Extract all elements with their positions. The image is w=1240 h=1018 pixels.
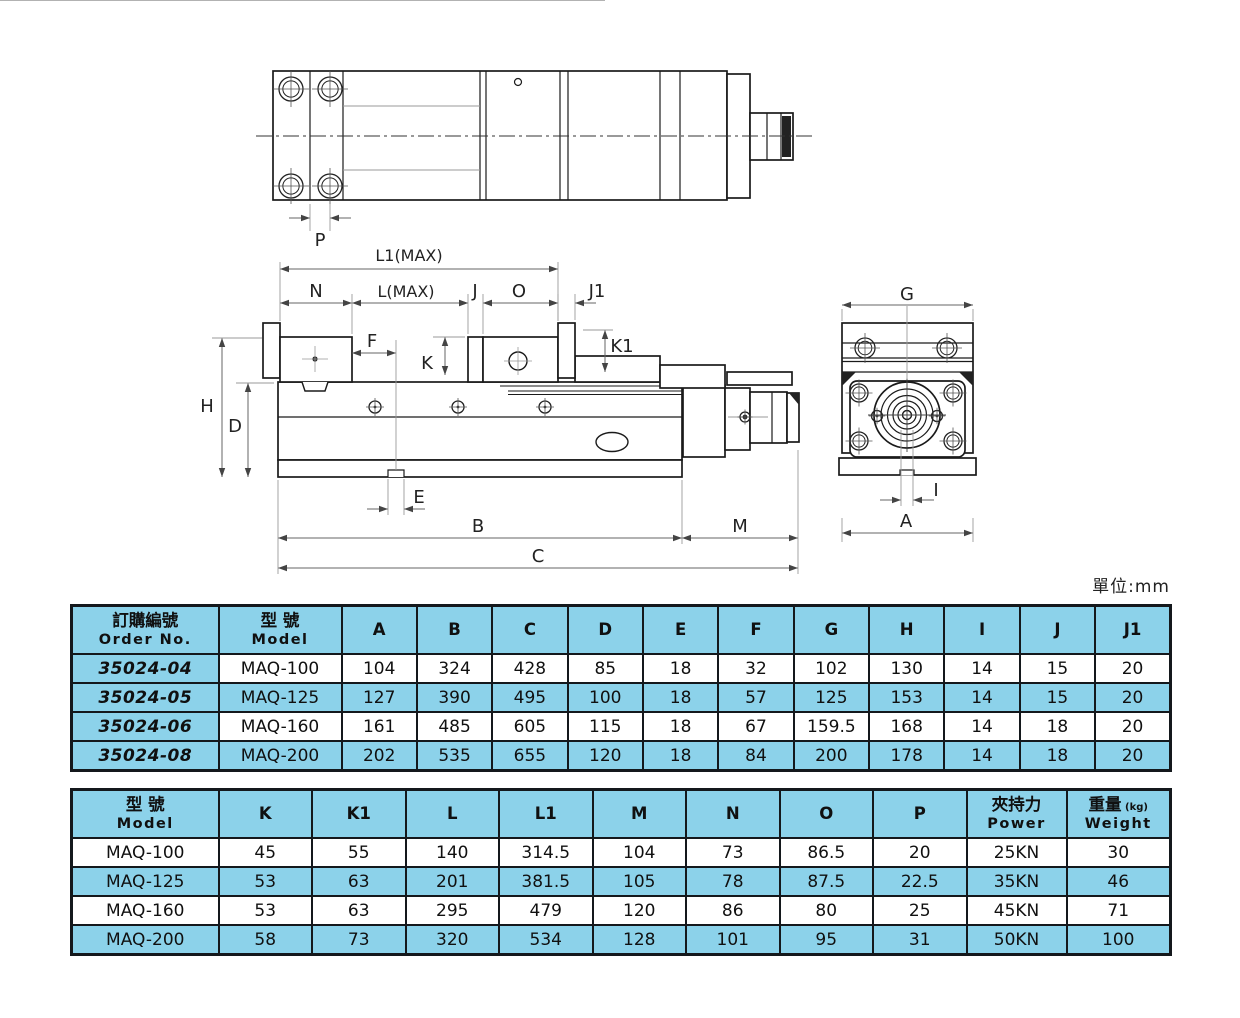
value-cell: 18: [1020, 712, 1095, 741]
value-cell: 53: [219, 896, 313, 925]
header-row: 型 號ModelKK1LL1MNOP夾持力Power重量 (kg)Weight: [72, 790, 1171, 839]
column-header: H: [869, 606, 944, 655]
value-cell: 46: [1067, 867, 1171, 896]
value-cell: 14: [944, 712, 1019, 741]
value-cell: 14: [944, 654, 1019, 683]
value-cell: 50KN: [967, 925, 1067, 955]
value-cell: 84: [718, 741, 793, 771]
dim-label-a: A: [900, 511, 913, 532]
dim-label-c: C: [532, 546, 545, 567]
value-cell: 178: [869, 741, 944, 771]
value-cell: 86.5: [780, 838, 874, 867]
dim-label-d: D: [228, 416, 242, 437]
value-cell: 45: [219, 838, 313, 867]
dim-label-j: J: [471, 281, 477, 302]
order-no-cell: 35024-05: [72, 683, 219, 712]
column-header: A: [342, 606, 417, 655]
value-cell: 78: [686, 867, 780, 896]
value-cell: 14: [944, 741, 1019, 771]
value-cell: 485: [417, 712, 492, 741]
value-cell: 324: [417, 654, 492, 683]
value-cell: 45KN: [967, 896, 1067, 925]
value-cell: 159.5: [794, 712, 869, 741]
dim-label-b: B: [472, 516, 484, 537]
value-cell: 22.5: [873, 867, 967, 896]
dim-label-k1: K1: [610, 336, 633, 357]
value-cell: 86: [686, 896, 780, 925]
value-cell: 18: [1020, 741, 1095, 771]
column-header: I: [944, 606, 1019, 655]
value-cell: 200: [794, 741, 869, 771]
column-header: O: [780, 790, 874, 839]
dim-label-n: N: [309, 281, 322, 302]
column-header: M: [593, 790, 687, 839]
column-header: 夾持力Power: [967, 790, 1067, 839]
value-cell: 495: [492, 683, 567, 712]
value-cell: 20: [1095, 741, 1170, 771]
value-cell: 201: [406, 867, 500, 896]
column-header: J1: [1095, 606, 1170, 655]
value-cell: 20: [1095, 712, 1170, 741]
order-no-cell: 35024-08: [72, 741, 219, 771]
value-cell: 202: [342, 741, 417, 771]
value-cell: 31: [873, 925, 967, 955]
value-cell: 58: [219, 925, 313, 955]
value-cell: 57: [718, 683, 793, 712]
value-cell: 14: [944, 683, 1019, 712]
value-cell: 115: [568, 712, 643, 741]
table-row: MAQ-1004555140314.51047386.52025KN30: [72, 838, 1171, 867]
value-cell: 655: [492, 741, 567, 771]
value-cell: 534: [499, 925, 593, 955]
value-cell: 87.5: [780, 867, 874, 896]
value-cell: 120: [568, 741, 643, 771]
dim-label-i: I: [933, 480, 938, 501]
value-cell: 127: [342, 683, 417, 712]
column-header: E: [643, 606, 718, 655]
column-header: B: [417, 606, 492, 655]
value-cell: 295: [406, 896, 500, 925]
dimension-table-2: 型 號ModelKK1LL1MNOP夾持力Power重量 (kg)Weight …: [70, 788, 1172, 956]
dim-label-g: G: [900, 284, 914, 305]
value-cell: 101: [686, 925, 780, 955]
column-header: G: [794, 606, 869, 655]
value-cell: 153: [869, 683, 944, 712]
order-no-cell: 35024-04: [72, 654, 219, 683]
column-header: C: [492, 606, 567, 655]
table-row: MAQ-160536329547912086802545KN71: [72, 896, 1171, 925]
model-cell: MAQ-125: [72, 867, 219, 896]
value-cell: 168: [869, 712, 944, 741]
value-cell: 100: [568, 683, 643, 712]
value-cell: 120: [593, 896, 687, 925]
plan-view: [256, 71, 812, 200]
value-cell: 161: [342, 712, 417, 741]
column-header: 型 號Model: [219, 606, 342, 655]
value-cell: 130: [869, 654, 944, 683]
value-cell: 18: [643, 712, 718, 741]
dim-label-h: H: [200, 396, 214, 417]
column-header: 訂購編號Order No.: [72, 606, 219, 655]
side-view: [263, 323, 799, 477]
column-header: N: [686, 790, 780, 839]
table-row: 35024-05MAQ-1251273904951001857125153141…: [72, 683, 1171, 712]
value-cell: 15: [1020, 683, 1095, 712]
value-cell: 63: [312, 896, 406, 925]
value-cell: 381.5: [499, 867, 593, 896]
value-cell: 18: [643, 741, 718, 771]
value-cell: 104: [342, 654, 417, 683]
value-cell: 102: [794, 654, 869, 683]
value-cell: 320: [406, 925, 500, 955]
column-header: P: [873, 790, 967, 839]
value-cell: 314.5: [499, 838, 593, 867]
header-row: 訂購編號Order No.型 號ModelABCDEFGHIJJ1: [72, 606, 1171, 655]
dim-label-e: E: [413, 487, 424, 508]
value-cell: 605: [492, 712, 567, 741]
dim-label-o: O: [512, 281, 526, 302]
column-header: K1: [312, 790, 406, 839]
value-cell: 105: [593, 867, 687, 896]
value-cell: 20: [1095, 654, 1170, 683]
value-cell: 15: [1020, 654, 1095, 683]
value-cell: 535: [417, 741, 492, 771]
value-cell: 20: [873, 838, 967, 867]
value-cell: 479: [499, 896, 593, 925]
value-cell: 104: [593, 838, 687, 867]
value-cell: 95: [780, 925, 874, 955]
dim-label-p: P: [315, 230, 326, 251]
dim-label-j1: J1: [588, 281, 606, 302]
dimension-table-1: 訂購編號Order No.型 號ModelABCDEFGHIJJ1 35024-…: [70, 604, 1172, 772]
value-cell: 25: [873, 896, 967, 925]
value-cell: 20: [1095, 683, 1170, 712]
table-row: MAQ-1255363201381.51057887.522.535KN46: [72, 867, 1171, 896]
dim-label-f: F: [367, 331, 377, 352]
value-cell: 18: [643, 683, 718, 712]
value-cell: 63: [312, 867, 406, 896]
order-no-cell: 35024-06: [72, 712, 219, 741]
value-cell: 125: [794, 683, 869, 712]
value-cell: MAQ-200: [219, 741, 342, 771]
value-cell: 18: [643, 654, 718, 683]
column-header: J: [1020, 606, 1095, 655]
value-cell: 73: [312, 925, 406, 955]
model-cell: MAQ-200: [72, 925, 219, 955]
table-row: MAQ-2005873320534128101953150KN100: [72, 925, 1171, 955]
technical-drawing: P L1(MAX) N L(MAX) J O J1 F K K1 H D E B…: [0, 0, 1240, 600]
value-cell: 140: [406, 838, 500, 867]
value-cell: 67: [718, 712, 793, 741]
value-cell: MAQ-100: [219, 654, 342, 683]
value-cell: 390: [417, 683, 492, 712]
unit-label: 單位:mm: [1052, 572, 1170, 597]
dim-label-m: M: [732, 516, 748, 537]
value-cell: 30: [1067, 838, 1171, 867]
table-row: 35024-08MAQ-2002025356551201884200178141…: [72, 741, 1171, 771]
dim-label-l: L(MAX): [377, 282, 434, 301]
value-cell: 128: [593, 925, 687, 955]
value-cell: 25KN: [967, 838, 1067, 867]
dim-label-l1: L1(MAX): [375, 246, 442, 265]
dim-label-k: K: [421, 353, 434, 374]
column-header: 重量 (kg)Weight: [1067, 790, 1171, 839]
value-cell: 100: [1067, 925, 1171, 955]
column-header: L: [406, 790, 500, 839]
column-header: F: [718, 606, 793, 655]
value-cell: 85: [568, 654, 643, 683]
column-header: L1: [499, 790, 593, 839]
value-cell: 32: [718, 654, 793, 683]
table-row: 35024-06MAQ-1601614856051151867159.51681…: [72, 712, 1171, 741]
column-header: 型 號Model: [72, 790, 219, 839]
value-cell: MAQ-160: [219, 712, 342, 741]
value-cell: 428: [492, 654, 567, 683]
value-cell: 80: [780, 896, 874, 925]
value-cell: 35KN: [967, 867, 1067, 896]
column-header: D: [568, 606, 643, 655]
value-cell: 53: [219, 867, 313, 896]
value-cell: 73: [686, 838, 780, 867]
value-cell: 71: [1067, 896, 1171, 925]
column-header: K: [219, 790, 313, 839]
datasheet-page: P L1(MAX) N L(MAX) J O J1 F K K1 H D E B…: [0, 0, 1240, 1018]
value-cell: MAQ-125: [219, 683, 342, 712]
table-row: 35024-04MAQ-1001043244288518321021301415…: [72, 654, 1171, 683]
value-cell: 55: [312, 838, 406, 867]
model-cell: MAQ-100: [72, 838, 219, 867]
model-cell: MAQ-160: [72, 896, 219, 925]
